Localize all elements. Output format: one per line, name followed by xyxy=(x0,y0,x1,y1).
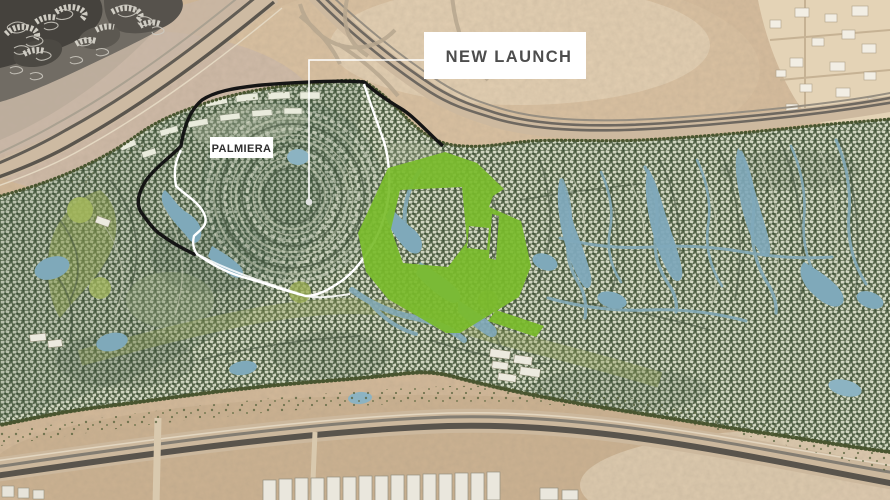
svg-text:PALMIERA: PALMIERA xyxy=(212,143,272,155)
svg-text:NEW LAUNCH: NEW LAUNCH xyxy=(446,48,573,66)
